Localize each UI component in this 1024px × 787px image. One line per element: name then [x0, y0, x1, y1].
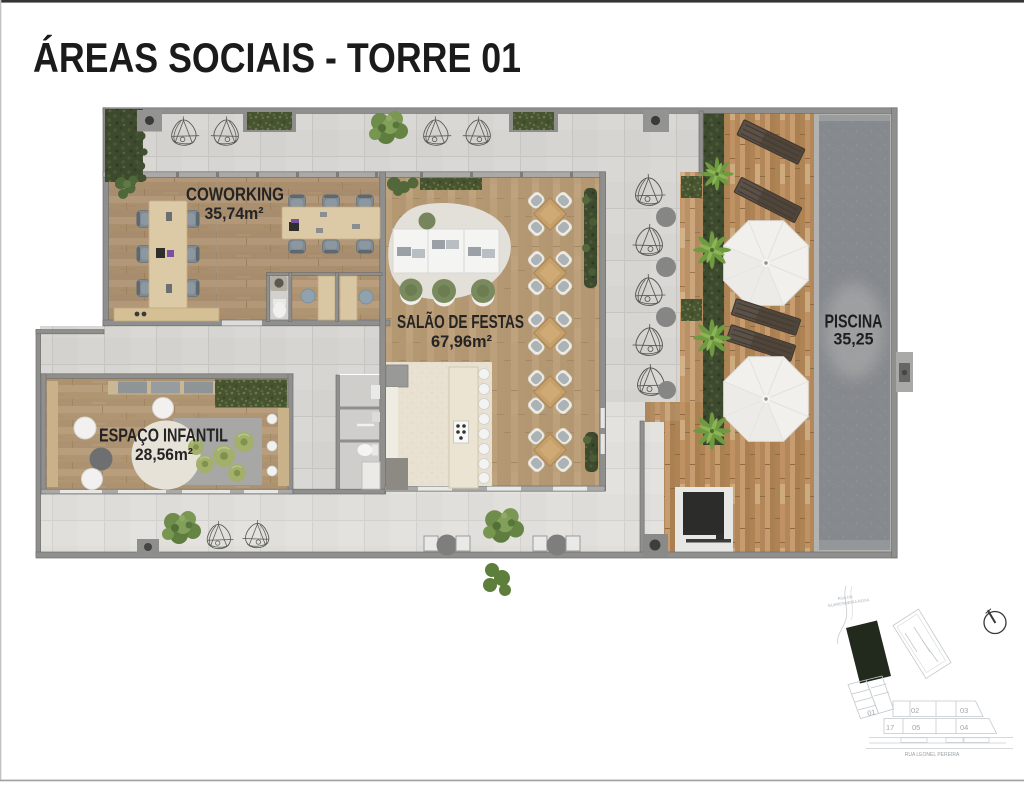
svg-text:35,25: 35,25: [834, 331, 874, 349]
svg-text:35,74m²: 35,74m²: [205, 205, 264, 223]
svg-text:SALÃO DE FESTAS: SALÃO DE FESTAS: [397, 311, 524, 332]
svg-text:03: 03: [960, 706, 968, 715]
svg-text:PISCINA: PISCINA: [825, 312, 883, 332]
svg-text:05: 05: [912, 723, 920, 732]
svg-text:RUA LEONEL PEREIRA: RUA LEONEL PEREIRA: [905, 752, 960, 758]
svg-text:02: 02: [911, 706, 919, 715]
svg-text:67,96m²: 67,96m²: [431, 333, 492, 351]
svg-text:17: 17: [886, 723, 894, 732]
svg-text:ESPAÇO INFANTIL: ESPAÇO INFANTIL: [99, 426, 228, 446]
svg-text:COWORKING: COWORKING: [186, 185, 284, 205]
svg-text:28,56m²: 28,56m²: [135, 446, 193, 464]
svg-text:04: 04: [960, 723, 968, 732]
svg-text:ÁREAS SOCIAIS - TORRE 01: ÁREAS SOCIAIS - TORRE 01: [33, 34, 521, 81]
